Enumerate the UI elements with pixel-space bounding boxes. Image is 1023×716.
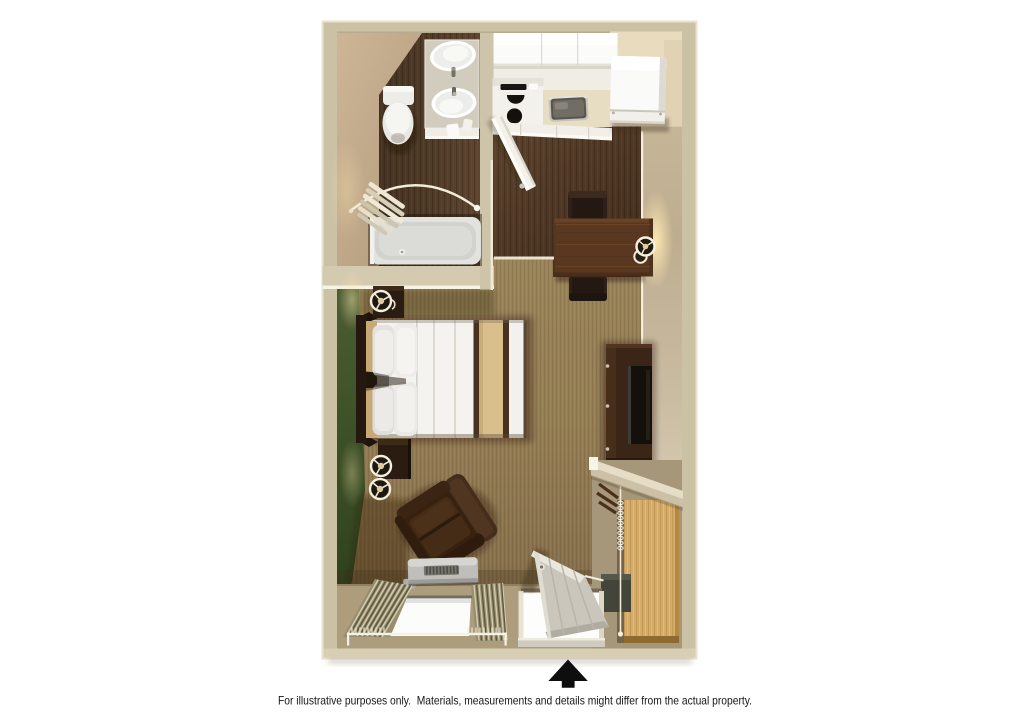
svg-text:For illustrative purposes only: For illustrative purposes only. Material… bbox=[278, 694, 752, 708]
